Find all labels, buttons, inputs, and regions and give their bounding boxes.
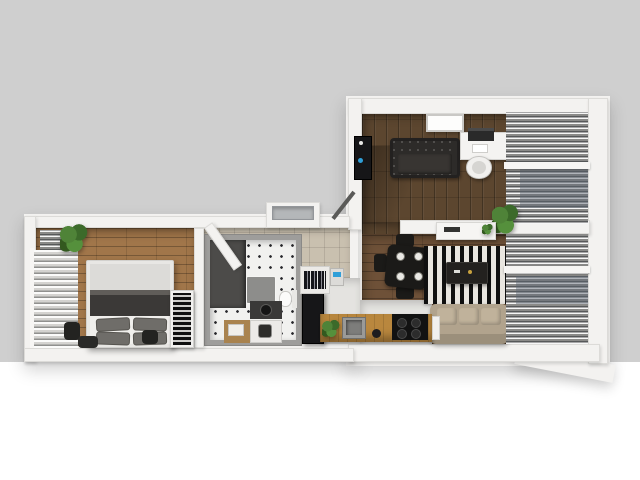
cabinet-drawer xyxy=(228,324,244,336)
bedroom-speaker xyxy=(142,330,158,344)
round-basin xyxy=(260,304,272,316)
bed-head-sheet xyxy=(90,264,170,292)
cabinet-blue-led xyxy=(358,158,363,163)
shelf-slats xyxy=(173,293,191,345)
coffee-table-gold-decor xyxy=(468,270,472,274)
printer xyxy=(468,128,494,141)
left-wing-bottom-wall xyxy=(24,348,354,362)
cabinet-white-dot xyxy=(359,141,363,145)
desk-paper xyxy=(472,144,488,153)
ceiling-lamp xyxy=(426,114,464,132)
pillow-3 xyxy=(96,331,130,345)
office-chair-seat xyxy=(472,161,486,174)
washer-door xyxy=(258,324,272,338)
office-black-cabinet xyxy=(354,136,372,180)
counter-end-cabinet xyxy=(432,316,440,340)
living-window-glass xyxy=(516,276,588,304)
burner-4 xyxy=(411,329,421,339)
kitchen-plant xyxy=(322,320,340,338)
floorplan-scene xyxy=(0,0,640,480)
window-sill-bar xyxy=(30,248,34,348)
wine-bottles xyxy=(304,271,326,289)
console-decor xyxy=(444,227,460,232)
right-wing-bottom-wall xyxy=(348,344,600,362)
place-setting-2 xyxy=(414,252,423,261)
place-setting-1 xyxy=(396,252,405,261)
burner-2 xyxy=(411,318,421,328)
place-setting-3 xyxy=(396,272,405,281)
toilet-tank xyxy=(292,290,297,308)
office-window-transom xyxy=(504,162,590,169)
console-plant xyxy=(482,224,493,235)
sofa-cushion-1 xyxy=(437,308,457,325)
entrance-door xyxy=(272,206,314,220)
shower-tray xyxy=(246,276,276,304)
right-window-wall xyxy=(588,98,608,364)
bedroom-bathroom-wall xyxy=(194,228,204,348)
kettle xyxy=(372,329,381,338)
chesterfield-cushions xyxy=(398,154,452,174)
sofa-cushion-3 xyxy=(481,308,501,325)
living-window-transom xyxy=(504,266,590,273)
bed-blanket xyxy=(90,290,170,316)
office-window-glass xyxy=(520,168,588,208)
bedroom-plant xyxy=(60,224,88,254)
coffee-table xyxy=(446,262,488,284)
burner-1 xyxy=(397,318,407,328)
coffee-table-book xyxy=(454,270,460,273)
floor-bag-2 xyxy=(78,336,98,348)
sofa-cushion-2 xyxy=(459,308,479,325)
burner-3 xyxy=(397,329,407,339)
pillow-1 xyxy=(96,317,131,332)
appliance-blue-display xyxy=(333,272,341,277)
place-setting-4 xyxy=(414,272,423,281)
sink-basin xyxy=(346,320,362,335)
kitchen-appliance xyxy=(330,268,344,286)
